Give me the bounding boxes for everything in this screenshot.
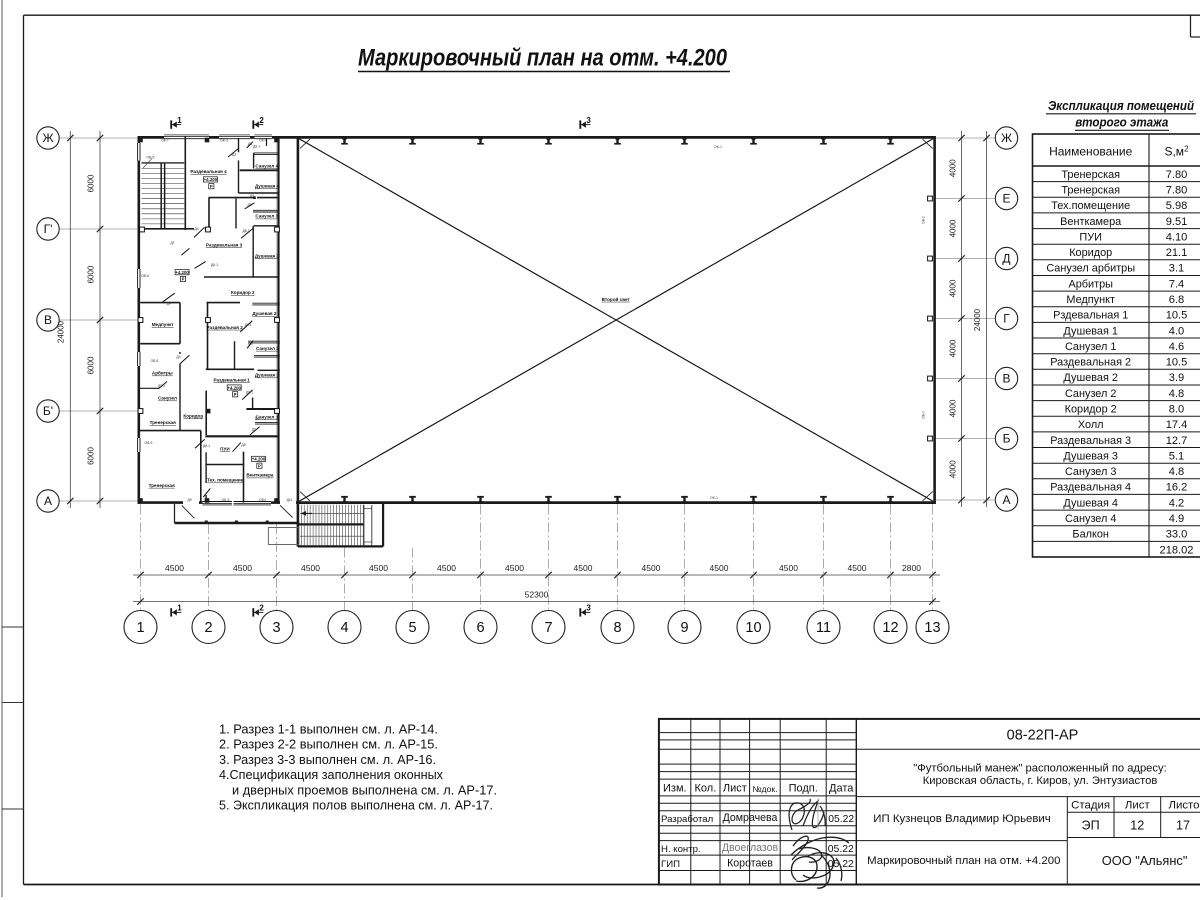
svg-text:1: 1 [136,620,144,636]
svg-text:Ж: Ж [1001,131,1012,145]
svg-text:Душевая 1: Душевая 1 [1063,325,1118,337]
svg-text:Экспликация помещений: Экспликация помещений [1048,98,1194,113]
svg-text:3: 3 [586,116,591,125]
svg-text:6000: 6000 [87,356,96,374]
svg-text:А: А [44,494,52,508]
svg-text:Листов: Листов [1168,800,1200,812]
svg-text:10: 10 [745,620,761,636]
svg-text:Коридор 2: Коридор 2 [231,290,255,295]
svg-text:4.2: 4.2 [1169,497,1184,509]
svg-text:8.0: 8.0 [1169,404,1184,416]
svg-text:Р: Р [182,277,185,282]
svg-text:ОВ-6: ОВ-6 [151,359,159,363]
svg-text:Маркировочный план на отм. +4.: Маркировочный план на отм. +4.200 [358,45,727,72]
svg-text:6000: 6000 [87,447,96,465]
svg-text:4500: 4500 [437,563,456,573]
svg-text:Б': Б' [43,404,53,418]
svg-text:Венткамера: Венткамера [1060,216,1122,228]
svg-text:8: 8 [613,620,621,636]
svg-text:11: 11 [816,620,831,636]
svg-text:ДК.1: ДК.1 [246,390,253,394]
svg-text:ОВ-2: ОВ-2 [922,216,926,224]
svg-text:Д4: Д4 [167,302,171,306]
svg-text:7: 7 [544,620,552,636]
svg-text:05.22: 05.22 [828,844,854,855]
svg-text:4500: 4500 [848,563,867,573]
svg-text:Г': Г' [44,222,53,236]
svg-text:52300: 52300 [525,589,549,599]
svg-text:Раздевальная 2: Раздевальная 2 [1050,357,1131,369]
svg-text:Тренерская: Тренерская [149,483,176,488]
svg-text:Д4: Д4 [176,355,180,359]
svg-text:08-22П-АР: 08-22П-АР [1007,728,1079,744]
svg-text:Душевая 4: Душевая 4 [1063,497,1118,509]
svg-text:ДТ: ДТ [170,241,174,245]
svg-text:5: 5 [408,620,416,636]
svg-text:Лист: Лист [723,783,747,795]
svg-text:ОК-3: ОК-3 [220,139,228,143]
svg-text:Душевая 2: Душевая 2 [252,311,277,316]
svg-text:3.9: 3.9 [1169,372,1184,384]
svg-text:ДК.1: ДК.1 [211,263,218,267]
svg-text:Тренерская: Тренерская [1061,185,1120,197]
svg-text:А: А [1002,493,1010,507]
svg-text:6000: 6000 [87,174,96,192]
svg-text:Коридор: Коридор [183,414,203,419]
svg-text:Арбитры: Арбитры [1068,278,1113,290]
svg-text:Разработал: Разработал [661,814,713,825]
svg-text:Д8: Д8 [247,203,251,207]
svg-text:Раздевальная 3: Раздевальная 3 [206,243,243,248]
svg-text:12: 12 [882,620,898,636]
svg-text:Наименование: Наименование [1049,145,1133,159]
svg-text:4500: 4500 [779,563,798,573]
svg-text:Тренерская: Тренерская [150,420,177,425]
svg-text:Г: Г [1003,312,1010,326]
svg-text:4500: 4500 [505,563,524,573]
svg-text:3: 3 [586,604,591,613]
svg-text:6: 6 [476,620,484,636]
svg-text:12: 12 [1130,819,1144,833]
svg-text:Арбитры: Арбитры [152,370,173,376]
svg-text:Н. контр.: Н. контр. [661,844,701,855]
svg-text:4000: 4000 [949,460,958,478]
svg-text:4000: 4000 [949,399,958,417]
svg-text:4500: 4500 [642,563,661,573]
svg-text:Санузел: Санузел [158,396,177,401]
svg-text:Подп.: Подп. [789,783,818,795]
svg-text:6.8: 6.8 [1169,294,1184,306]
svg-text:33.0: 33.0 [1166,529,1188,541]
svg-text:7.80: 7.80 [1166,185,1188,197]
svg-text:Д11: Д11 [287,498,293,502]
svg-text:Раздевальная 4: Раздевальная 4 [190,169,227,174]
svg-text:Д: Д [1002,252,1010,266]
svg-text:ОБ-3: ОБ-3 [222,498,230,502]
svg-text:Душевая 2: Душевая 2 [1063,372,1118,384]
svg-text:2: 2 [259,604,264,613]
svg-text:Д9: Д9 [250,194,254,198]
svg-text:Д9: Д9 [248,142,252,146]
svg-text:Второй свет: Второй свет [602,296,631,302]
svg-text:1: 1 [177,604,182,613]
svg-text:Санузел 2: Санузел 2 [256,346,279,351]
svg-text:Медпункт: Медпункт [1066,294,1115,306]
svg-text:3: 3 [272,620,280,636]
svg-text:17: 17 [1176,819,1190,833]
svg-text:4500: 4500 [369,563,388,573]
svg-text:Тех.помещение: Тех.помещение [1051,200,1130,212]
svg-text:Д6: Д6 [252,428,256,432]
svg-text:ОВ-2: ОВ-2 [922,411,926,419]
svg-text:4.9: 4.9 [1169,513,1184,525]
svg-text:Санузел 3: Санузел 3 [255,214,278,219]
svg-text:Стадия: Стадия [1071,800,1110,812]
svg-text:5. Экспликация полов выполнена: 5. Экспликация полов выполнена см. л. АР… [219,799,493,813]
svg-text:Р: Р [210,184,213,189]
svg-text:Д9: Д9 [241,443,245,447]
svg-text:Душевая 3: Душевая 3 [1063,450,1118,462]
svg-text:Раздевальная 2: Раздевальная 2 [207,325,244,330]
svg-text:4000: 4000 [949,159,958,177]
svg-text:ОК-7: ОК-7 [161,139,169,143]
svg-text:16.2: 16.2 [1166,482,1188,494]
svg-text:4.6: 4.6 [1169,341,1184,353]
svg-text:4.0: 4.0 [1169,325,1184,337]
svg-text:ООО "Альянс": ООО "Альянс" [1102,853,1188,868]
svg-text:ОБ4: ОБ4 [259,498,266,502]
svg-text:4000: 4000 [949,219,958,237]
svg-text:Д8: Д8 [248,341,252,345]
svg-text:и дверных проемов выполнена см: и дверных проемов выполнена см. л. АР-17… [232,783,497,797]
svg-text:Тренерская: Тренерская [1061,169,1120,181]
svg-text:Медпункт: Медпункт [152,322,175,327]
svg-text:+4.200: +4.200 [227,385,241,390]
svg-text:ОВ-9: ОВ-9 [145,441,153,445]
svg-text:Р: Р [234,392,237,397]
svg-text:Дата: Дата [829,783,854,795]
svg-text:13: 13 [924,620,940,636]
svg-text:Б: Б [1003,432,1011,446]
svg-text:Тех. помещение: Тех. помещение [207,478,244,483]
svg-text:Лист: Лист [1125,800,1151,812]
svg-text:9: 9 [680,620,688,636]
svg-text:2: 2 [259,116,264,125]
svg-text:4500: 4500 [233,563,252,573]
svg-text:Санузел 4: Санузел 4 [1065,513,1117,525]
svg-text:Душевая 1: Душевая 1 [255,373,280,378]
svg-text:Холл: Холл [1078,419,1104,431]
svg-text:"Футбольный манеж" расположенн: "Футбольный манеж" расположенный по адре… [913,763,1166,775]
svg-text:4500: 4500 [301,563,320,573]
svg-text:Коротаев: Коротаев [727,857,773,869]
svg-text:Ж: Ж [42,131,53,145]
svg-text:Д8.1: Д8.1 [242,229,249,233]
svg-text:1: 1 [177,116,182,125]
svg-text:Е: Е [1002,192,1010,206]
svg-text:9.51: 9.51 [1166,216,1188,228]
svg-text:ОВ-6: ОВ-6 [141,274,149,278]
svg-text:второго этажа: второго этажа [1075,115,1168,130]
svg-text:Д3: Д3 [232,153,236,157]
svg-text:2: 2 [204,620,212,636]
svg-text:Душевая 3: Душевая 3 [255,253,280,258]
svg-text:Коридор 2: Коридор 2 [1065,404,1117,416]
svg-text:4: 4 [340,620,348,636]
svg-text:4500: 4500 [710,563,729,573]
svg-text:Д9: Д9 [187,498,191,502]
svg-text:Санузел арбитры: Санузел арбитры [1046,263,1135,275]
svg-text:Кировская область, г. Киров, у: Кировская область, г. Киров, ул. Энтузиа… [923,775,1158,787]
svg-text:ОК-1: ОК-1 [714,145,722,149]
svg-text:ПУИ: ПУИ [1079,232,1102,244]
svg-text:21.1: 21.1 [1166,247,1188,259]
svg-text:4500: 4500 [165,563,184,573]
svg-text:Санузел 3: Санузел 3 [1065,466,1117,478]
svg-text:6000: 6000 [87,265,96,283]
svg-text:ПУИ: ПУИ [220,446,229,451]
svg-text:Рздевальная 1: Рздевальная 1 [1053,310,1128,322]
svg-text:7.4: 7.4 [1169,278,1184,290]
svg-text:4.10: 4.10 [1166,232,1188,244]
svg-text:Маркировочный план на отм. +4.: Маркировочный план на отм. +4.200 [867,855,1060,867]
svg-text:10.5: 10.5 [1166,357,1188,369]
svg-text:Санузел 1: Санузел 1 [1065,341,1117,353]
svg-text:Д6: Д6 [255,417,259,421]
svg-text:Балкон: Балкон [1072,529,1109,541]
svg-text:7.80: 7.80 [1166,169,1188,181]
svg-text:Санузел 4: Санузел 4 [255,163,278,168]
svg-text:3.1: 3.1 [1169,263,1184,275]
svg-text:5.1: 5.1 [1169,450,1184,462]
svg-text:Р: Р [258,463,261,468]
svg-text:Венткамера: Венткамера [246,473,274,478]
svg-text:ОК-4: ОК-4 [259,139,267,143]
svg-text:4.Спецификация заполнения окон: 4.Спецификация заполнения оконных [219,768,444,782]
svg-text:2800: 2800 [902,563,921,573]
svg-text:12.7: 12.7 [1166,435,1188,447]
svg-text:Изм.: Изм. [663,783,687,795]
svg-text:Кол.: Кол. [695,783,717,795]
svg-text:Д5.1: Д5.1 [158,384,165,388]
svg-text:4.8: 4.8 [1169,466,1184,478]
svg-text:ИП Кузнецов Владимир Юрьевич: ИП Кузнецов Владимир Юрьевич [873,813,1050,825]
svg-text:05.22: 05.22 [828,814,854,825]
svg-text:Двоеглазов: Двоеглазов [722,842,779,854]
svg-text:3. Разрез 3-3 выполнен см. л.: 3. Разрез 3-3 выполнен см. л. АР-16. [219,753,436,767]
svg-text:218.02: 218.02 [1160,544,1194,556]
svg-text:Раздевальная 3: Раздевальная 3 [1050,435,1131,447]
svg-text:2. Разрез 2-2 выполнен см. л.: 2. Разрез 2-2 выполнен см. л. АР-15. [219,738,438,752]
svg-text:+4.200: +4.200 [204,177,218,182]
svg-text:4000: 4000 [949,339,958,357]
svg-text:Душевая 4: Душевая 4 [255,183,280,188]
svg-text:№док.: №док. [752,784,777,794]
svg-text:Домрачева: Домрачева [723,812,778,824]
svg-text:В: В [1002,372,1010,386]
svg-text:Санузел 2: Санузел 2 [1065,388,1117,400]
svg-text:Раздевальная 1: Раздевальная 1 [213,377,250,382]
svg-text:5.98: 5.98 [1166,200,1188,212]
svg-text:+4.200: +4.200 [175,270,189,275]
svg-text:ДК.1: ДК.1 [244,323,251,327]
svg-text:ОВ-5: ОВ-5 [147,155,155,159]
svg-text:Раздевальная 4: Раздевальная 4 [1050,482,1131,494]
svg-text:Коридор: Коридор [1069,247,1112,259]
svg-text:+4.200: +4.200 [252,457,266,462]
svg-text:ОК-1: ОК-1 [710,496,718,500]
svg-text:17.4: 17.4 [1166,419,1188,431]
svg-text:1. Разрез 1-1 выполнен см. л.: 1. Разрез 1-1 выполнен см. л. АР-14. [219,723,438,737]
svg-text:24000: 24000 [973,308,982,331]
svg-text:10.5: 10.5 [1166,310,1188,322]
svg-text:4500: 4500 [574,563,593,573]
svg-text:ЭП: ЭП [1082,819,1100,833]
svg-text:ГИП: ГИП [661,859,680,870]
svg-text:4000: 4000 [949,279,958,297]
svg-text:ДК.1: ДК.1 [203,444,210,448]
svg-text:4.8: 4.8 [1169,388,1184,400]
svg-text:В: В [44,313,52,327]
svg-text:Д9.1: Д9.1 [253,145,260,149]
svg-text:Д4: Д4 [194,227,198,231]
